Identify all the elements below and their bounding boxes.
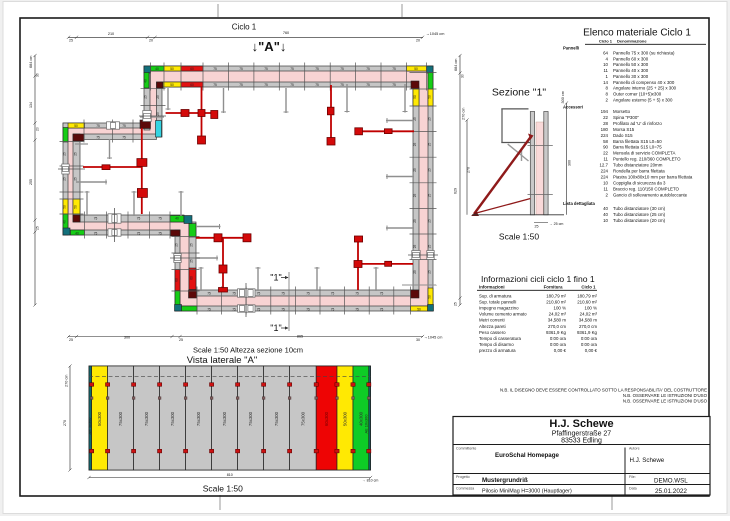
svg-text:H.J. Schewe: H.J. Schewe	[549, 418, 613, 430]
svg-text:25: 25	[175, 243, 179, 247]
svg-text:25: 25	[428, 168, 432, 172]
svg-text:810: 810	[227, 473, 233, 477]
svg-text:25: 25	[144, 95, 148, 99]
svg-text:60: 60	[190, 67, 194, 71]
svg-text:50x300: 50x300	[343, 411, 348, 426]
svg-text:0:00 ora: 0:00 ora	[581, 342, 598, 347]
svg-text:40: 40	[603, 206, 608, 211]
svg-text:684 cm: 684 cm	[29, 56, 33, 68]
svg-text:→ 810 cm: → 810 cm	[362, 479, 378, 483]
svg-text:224: 224	[601, 133, 609, 138]
svg-text:30: 30	[416, 338, 420, 342]
svg-text:25.01.2022: 25.01.2022	[655, 488, 687, 495]
svg-text:50: 50	[413, 95, 417, 99]
svg-text:prezzo di armatura: prezzo di armatura	[479, 348, 516, 353]
svg-text:75: 75	[257, 308, 261, 312]
svg-text:0:00 ora: 0:00 ora	[550, 336, 567, 341]
svg-text:40: 40	[603, 212, 608, 217]
svg-text:270: 270	[63, 420, 67, 426]
svg-text:75: 75	[290, 83, 294, 87]
svg-text:20: 20	[149, 39, 153, 43]
svg-text:11: 11	[603, 186, 608, 191]
svg-text:134: 134	[29, 102, 33, 108]
svg-text:Puntello reg. 210/360 COMPLETO: Puntello reg. 210/360 COMPLETO	[613, 157, 681, 162]
svg-text:11: 11	[603, 157, 608, 162]
svg-text:25: 25	[74, 152, 78, 156]
svg-text:100 %: 100 %	[554, 306, 567, 311]
svg-text:→1045 cm: →1045 cm	[424, 336, 442, 340]
svg-text:75: 75	[94, 232, 98, 236]
svg-text:25: 25	[63, 177, 67, 181]
svg-text:50: 50	[170, 67, 174, 71]
svg-text:Rondella per barra filettata: Rondella per barra filettata	[613, 169, 665, 174]
svg-text:Sezione "1": Sezione "1"	[492, 87, 546, 99]
svg-text:50: 50	[428, 295, 432, 299]
svg-text:75: 75	[96, 124, 100, 128]
svg-text:Data: Data	[629, 487, 637, 491]
svg-text:AE 10x300: AE 10x300	[363, 414, 368, 434]
svg-text:→ 25 cm: → 25 cm	[549, 222, 563, 226]
svg-text:9361,9 Kg: 9361,9 Kg	[577, 330, 598, 335]
svg-text:40: 40	[63, 220, 67, 224]
svg-text:Barra filettata S15 L0=75: Barra filettata S15 L0=75	[613, 145, 662, 150]
svg-text:11: 11	[603, 68, 608, 73]
svg-text:Peso cassero: Peso cassero	[479, 330, 506, 335]
svg-text:40: 40	[175, 217, 179, 221]
svg-text:0,00 €: 0,00 €	[554, 348, 567, 353]
svg-text:Informazioni: Informazioni	[479, 285, 505, 290]
svg-text:Dado S15: Dado S15	[613, 133, 633, 138]
svg-text:25: 25	[454, 302, 458, 306]
svg-text:90: 90	[603, 145, 608, 150]
svg-text:50: 50	[428, 95, 432, 99]
svg-text:12.7: 12.7	[599, 163, 608, 168]
svg-text:75x300: 75x300	[274, 411, 279, 426]
svg-text:25: 25	[190, 243, 194, 247]
svg-text:22: 22	[603, 115, 608, 120]
svg-text:25: 25	[179, 338, 183, 342]
svg-text:224: 224	[601, 174, 609, 179]
svg-text:50: 50	[74, 124, 78, 128]
svg-text:Ciclo 1: Ciclo 1	[581, 285, 596, 290]
svg-text:Tempo di casseratura: Tempo di casseratura	[479, 336, 522, 341]
svg-text:210,60 m²: 210,60 m²	[577, 300, 597, 305]
svg-text:Sup. di armatura: Sup. di armatura	[479, 294, 512, 299]
svg-text:75: 75	[355, 292, 359, 296]
svg-text:100 %: 100 %	[585, 306, 598, 311]
svg-text:EuroSchal Homepage: EuroSchal Homepage	[495, 452, 560, 459]
svg-text:Denominazione: Denominazione	[617, 39, 647, 44]
svg-text:75: 75	[340, 83, 344, 87]
svg-text:Vista laterale "A": Vista laterale "A"	[187, 355, 257, 366]
svg-text:N.B. OSSERVARE LE ISTRUZIONI D: N.B. OSSERVARE LE ISTRUZIONI D'USO	[623, 399, 708, 404]
svg-text:Morsetto: Morsetto	[613, 109, 631, 114]
svg-text:50: 50	[414, 67, 418, 71]
svg-text:75x300: 75x300	[300, 411, 305, 426]
svg-text:Profilato ad 'U' di rinforzo: Profilato ad 'U' di rinforzo	[613, 121, 662, 126]
svg-text:Tubo distanziatore (20 cm): Tubo distanziatore (20 cm)	[613, 218, 666, 223]
svg-text:"1": "1"	[270, 273, 281, 283]
svg-text:270 cm: 270 cm	[65, 375, 69, 387]
svg-text:25: 25	[413, 194, 417, 198]
svg-text:Volume cemento armato: Volume cemento armato	[479, 312, 527, 317]
svg-text:270 cm: 270 cm	[462, 108, 466, 120]
svg-text:75: 75	[122, 136, 126, 140]
svg-text:24,02 m³: 24,02 m³	[580, 312, 598, 317]
svg-text:75: 75	[232, 308, 236, 312]
svg-text:75: 75	[380, 308, 384, 312]
svg-text:75: 75	[257, 292, 261, 296]
svg-text:Pilosio MiniMag H=3000 (Hauptl: Pilosio MiniMag H=3000 (Hauptlager)	[482, 489, 572, 495]
svg-text:Sup. totale pannelli: Sup. totale pannelli	[479, 300, 516, 305]
svg-text:25: 25	[69, 39, 73, 43]
svg-text:60: 60	[190, 83, 194, 87]
svg-text:Scale 1:50 Altezza sezione 1: Scale 1:50 Altezza sezione 10cm	[193, 345, 303, 354]
svg-text:Piastra 100x80x10 mm per barra: Piastra 100x80x10 mm per barra filettata	[613, 174, 693, 179]
svg-text:75x300: 75x300	[144, 411, 149, 426]
svg-text:75: 75	[281, 308, 285, 312]
svg-text:Pannello 75 x 300 (su richiest: Pannello 75 x 300 (su richiesta)	[613, 51, 675, 56]
svg-text:224: 224	[601, 169, 609, 174]
svg-text:25: 25	[428, 245, 432, 249]
svg-text:Angolare interno (25 + 25) x 3: Angolare interno (25 + 25) x 300	[613, 86, 677, 91]
svg-text:25: 25	[413, 143, 417, 147]
svg-text:75: 75	[122, 124, 126, 128]
svg-text:75: 75	[315, 83, 319, 87]
svg-text:Pannello 50 x 300: Pannello 50 x 300	[613, 62, 649, 67]
svg-text:180,79 m²: 180,79 m²	[546, 294, 566, 299]
svg-text:75: 75	[306, 308, 310, 312]
svg-text:25: 25	[36, 226, 40, 230]
svg-text:25: 25	[413, 245, 417, 249]
svg-text:Accessori: Accessori	[563, 105, 583, 110]
svg-text:N.B. OSSERVARE LE ISTRUZIONI D: N.B. OSSERVARE LE ISTRUZIONI D'USO	[623, 393, 708, 398]
svg-text:75: 75	[315, 67, 319, 71]
svg-text:Mensola di servizio COMPLETA: Mensola di servizio COMPLETA	[613, 151, 675, 156]
svg-text:Tubo distanziatore 20mm: Tubo distanziatore 20mm	[613, 163, 663, 168]
svg-text:Ciclo 1: Ciclo 1	[232, 23, 257, 32]
svg-text:Coppiglia di sicurezza da 3: Coppiglia di sicurezza da 3	[613, 180, 666, 185]
svg-text:Scale 1:50: Scale 1:50	[203, 484, 243, 494]
svg-text:Braccio reg. 110/150 COMPLETO: Braccio reg. 110/150 COMPLETO	[613, 186, 680, 191]
svg-text:25: 25	[428, 117, 432, 121]
svg-text:83533 Edling: 83533 Edling	[561, 438, 602, 445]
svg-text:75x300: 75x300	[248, 411, 253, 426]
svg-text:75x300: 75x300	[170, 411, 175, 426]
svg-text:Committente: Committente	[456, 447, 476, 451]
svg-text:210,60 m²: 210,60 m²	[546, 300, 566, 305]
svg-text:760: 760	[283, 31, 289, 35]
svg-text:Pannello 60 x 300: Pannello 60 x 300	[613, 56, 649, 61]
svg-text:75x300: 75x300	[196, 411, 201, 426]
svg-text:75: 75	[264, 67, 268, 71]
svg-text:AE 5x300: AE 5x300	[87, 417, 92, 435]
svg-text:N.B. IL DISEGNO DEVE ESSERE CO: N.B. IL DISEGNO DEVE ESSERE CONTROLLATO …	[500, 388, 707, 393]
svg-text:255: 255	[29, 179, 33, 185]
svg-text:75: 75	[94, 217, 98, 221]
svg-text:75: 75	[366, 67, 370, 71]
svg-text:Fornitura: Fornitura	[544, 285, 563, 290]
svg-text:75: 75	[239, 83, 243, 87]
svg-text:25: 25	[156, 95, 160, 99]
svg-text:180: 180	[601, 127, 609, 132]
svg-text:75: 75	[213, 67, 217, 71]
svg-text:40: 40	[144, 79, 148, 83]
svg-text:75: 75	[213, 83, 217, 87]
svg-text:Gancio di sollevamento autoblo: Gancio di sollevamento autobloccante	[613, 192, 688, 197]
svg-text:Mustergrundriß: Mustergrundriß	[482, 477, 528, 484]
svg-text:25: 25	[535, 225, 539, 229]
svg-text:Pfaffingerstraße 27: Pfaffingerstraße 27	[552, 431, 612, 438]
svg-text:60x300: 60x300	[324, 411, 329, 426]
svg-text:300: 300	[124, 335, 130, 339]
svg-text:75: 75	[137, 232, 141, 236]
svg-text:50: 50	[63, 205, 67, 209]
svg-text:75: 75	[239, 67, 243, 71]
svg-text:10: 10	[603, 180, 608, 185]
svg-text:Pannello 40 x 300: Pannello 40 x 300	[613, 68, 649, 73]
svg-text:Morsa S15: Morsa S15	[613, 127, 635, 132]
svg-text:75: 75	[340, 67, 344, 71]
svg-text:30: 30	[461, 74, 465, 78]
svg-text:34,580 m: 34,580 m	[548, 318, 567, 323]
svg-text:Pannello di compenso 40 x 300: Pannello di compenso 40 x 300	[613, 80, 675, 85]
svg-text:20: 20	[36, 127, 40, 131]
svg-text:0,00 €: 0,00 €	[585, 348, 598, 353]
svg-text:Informazioni cicli ciclo 1 fi: Informazioni cicli ciclo 1 fino 1	[481, 274, 595, 284]
svg-text:270,0 cm: 270,0 cm	[548, 324, 566, 329]
svg-text:58: 58	[603, 139, 608, 144]
svg-text:75: 75	[380, 292, 384, 296]
svg-text:22: 22	[603, 151, 608, 156]
svg-text:50: 50	[74, 205, 78, 209]
svg-text:270: 270	[467, 167, 471, 173]
svg-text:75: 75	[331, 308, 335, 312]
svg-text:300 cm: 300 cm	[561, 91, 565, 103]
svg-text:Elenco materiale Ciclo 1: Elenco materiale Ciclo 1	[583, 28, 691, 39]
svg-text:9361,9 Kg: 9361,9 Kg	[546, 330, 567, 335]
svg-text:75: 75	[158, 232, 162, 236]
svg-text:50x300: 50x300	[97, 411, 102, 426]
svg-text:25: 25	[413, 270, 417, 274]
svg-text:0:00 ora: 0:00 ora	[550, 342, 567, 347]
svg-text:10: 10	[603, 218, 608, 223]
svg-text:Tubo distanziatore (30 cm): Tubo distanziatore (30 cm)	[613, 206, 666, 211]
svg-text:25: 25	[156, 112, 160, 116]
svg-text:Commessa: Commessa	[456, 487, 474, 491]
svg-text:75: 75	[232, 292, 236, 296]
svg-text:Lista dettagliata: Lista dettagliata	[563, 201, 596, 206]
svg-text:Ciclo 1: Ciclo 1	[599, 39, 613, 44]
svg-text:Angolare esterno (5 + 5) x 300: Angolare esterno (5 + 5) x 300	[613, 97, 673, 102]
svg-text:629: 629	[454, 188, 458, 194]
svg-text:75: 75	[137, 217, 141, 221]
svg-text:75: 75	[281, 292, 285, 296]
svg-text:30: 30	[36, 73, 40, 77]
svg-text:Metri correnti: Metri correnti	[479, 318, 505, 323]
svg-text:↓"A"↓: ↓"A"↓	[252, 39, 287, 54]
svg-text:210: 210	[108, 32, 114, 36]
svg-text:75: 75	[355, 308, 359, 312]
svg-text:"1": "1"	[270, 323, 281, 333]
svg-text:Outer corner (10+5)x300: Outer corner (10+5)x300	[613, 91, 662, 96]
svg-text:Impegno magazzino: Impegno magazzino	[479, 306, 519, 311]
svg-text:H.J. Schewe: H.J. Schewe	[630, 457, 665, 464]
svg-text:75: 75	[392, 67, 396, 71]
svg-text:75: 75	[331, 292, 335, 296]
svg-text:Progetto: Progetto	[456, 475, 470, 479]
svg-text:40: 40	[75, 232, 79, 236]
svg-text:75: 75	[158, 217, 162, 221]
svg-text:25: 25	[413, 219, 417, 223]
svg-text:25: 25	[74, 177, 78, 181]
svg-text:180,79 m²: 180,79 m²	[577, 294, 597, 299]
svg-text:60: 60	[190, 276, 194, 280]
svg-text:194: 194	[601, 109, 609, 114]
svg-text:Barra filettata S15 L0=50: Barra filettata S15 L0=50	[613, 139, 662, 144]
svg-text:75: 75	[366, 83, 370, 87]
svg-text:14: 14	[603, 80, 608, 85]
svg-text:Scale 1:50: Scale 1:50	[499, 232, 539, 242]
svg-text:75: 75	[392, 83, 396, 87]
svg-text:75: 75	[207, 292, 211, 296]
svg-text:75x300: 75x300	[222, 411, 227, 426]
svg-text:Autore: Autore	[629, 447, 640, 451]
svg-text:Tempo di disarmo: Tempo di disarmo	[479, 342, 514, 347]
svg-text:→1045 cm: →1045 cm	[426, 32, 444, 36]
svg-text:75: 75	[290, 67, 294, 71]
svg-text:Pannelli: Pannelli	[563, 45, 579, 50]
svg-text:File:: File:	[629, 475, 636, 479]
svg-text:25: 25	[428, 219, 432, 223]
svg-text:24,02 m³: 24,02 m³	[549, 312, 567, 317]
svg-text:270,0 cm: 270,0 cm	[579, 324, 597, 329]
svg-text:50: 50	[170, 83, 174, 87]
svg-text:75: 75	[207, 308, 211, 312]
svg-text:40: 40	[155, 67, 159, 71]
svg-text:75: 75	[96, 136, 100, 140]
svg-text:Spina "P300": Spina "P300"	[613, 115, 639, 120]
svg-text:300: 300	[568, 160, 572, 166]
svg-text:Pannello 30 x 300: Pannello 30 x 300	[613, 74, 649, 79]
svg-text:50: 50	[417, 308, 421, 312]
svg-text:10: 10	[603, 62, 608, 67]
svg-text:75: 75	[306, 292, 310, 296]
svg-text:25: 25	[190, 259, 194, 263]
svg-text:64: 64	[603, 51, 608, 56]
svg-text:75x300: 75x300	[118, 411, 123, 426]
svg-text:25: 25	[428, 270, 432, 274]
svg-text:865: 865	[297, 334, 303, 338]
svg-text:25: 25	[69, 338, 73, 342]
svg-text:20: 20	[416, 39, 420, 43]
svg-text:25: 25	[63, 152, 67, 156]
svg-text:34,580 m: 34,580 m	[579, 318, 598, 323]
svg-text:75: 75	[264, 83, 268, 87]
svg-text:25: 25	[428, 143, 432, 147]
svg-text:Altezza pareti: Altezza pareti	[479, 324, 506, 329]
svg-text:25: 25	[413, 168, 417, 172]
svg-text:DEMO.WSL: DEMO.WSL	[654, 478, 688, 485]
svg-text:Tubo distanziatore (25 cm): Tubo distanziatore (25 cm)	[613, 212, 666, 217]
svg-text:25: 25	[428, 194, 432, 198]
svg-text:0:00 ora: 0:00 ora	[581, 336, 598, 341]
svg-text:60: 60	[175, 278, 179, 282]
svg-text:28: 28	[603, 121, 608, 126]
svg-text:684 cm: 684 cm	[454, 59, 458, 71]
